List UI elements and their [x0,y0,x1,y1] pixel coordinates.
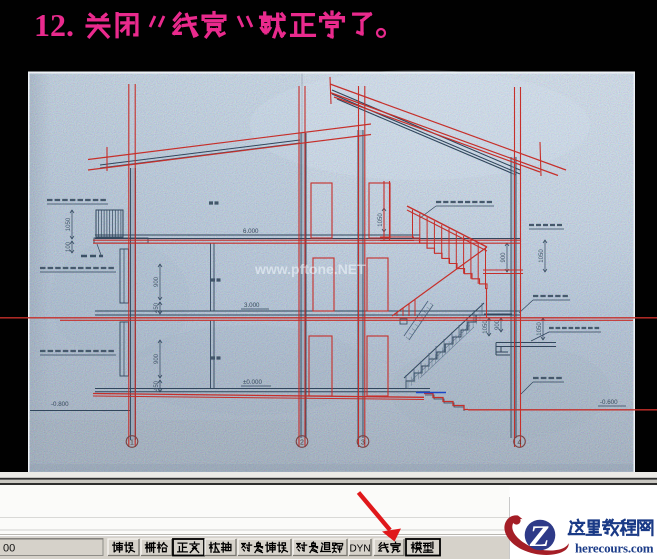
svg-text:450: 450 [154,380,160,391]
svg-text:1050: 1050 [537,322,543,336]
svg-text:00: 00 [3,543,15,555]
svg-text:900: 900 [154,353,160,364]
svg-text:-0.600: -0.600 [600,399,618,406]
svg-text:1050: 1050 [483,320,489,334]
svg-text:1050: 1050 [66,217,72,231]
svg-text:±0.000: ±0.000 [243,379,262,386]
svg-text:450: 450 [154,302,160,313]
svg-text:1: 1 [130,440,134,447]
svg-text:1050: 1050 [378,213,384,227]
svg-text:4: 4 [518,440,522,447]
svg-text:900: 900 [495,319,501,330]
svg-text:1050: 1050 [539,249,545,263]
svg-text:2: 2 [300,440,304,447]
svg-text:6.000: 6.000 [243,228,259,235]
svg-text:3.000: 3.000 [244,302,260,309]
svg-text:www.pftone.NET: www.pftone.NET [254,261,366,277]
svg-text:3: 3 [361,440,365,447]
svg-text:12.: 12. [34,7,74,43]
svg-text:900: 900 [154,276,160,287]
svg-text:herecours.com: herecours.com [575,541,654,556]
svg-text:-0.800: -0.800 [51,401,69,408]
svg-text:DYN: DYN [349,544,370,555]
svg-text:100: 100 [66,241,72,252]
svg-text:900: 900 [501,252,507,263]
